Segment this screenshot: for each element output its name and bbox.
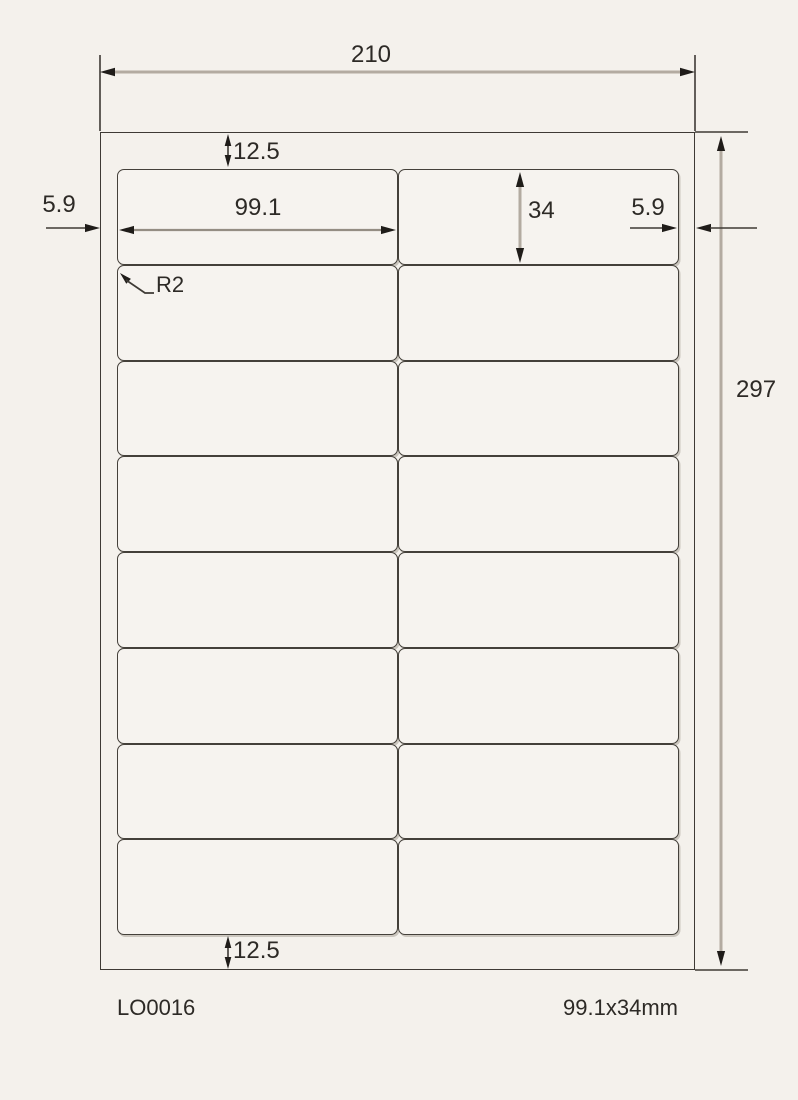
label-cell	[398, 839, 679, 935]
label-cell	[117, 552, 398, 648]
dimension-value-sheet-width: 210	[331, 43, 411, 67]
arrowhead-right-icon	[85, 224, 100, 232]
corner-radius-label: R2	[156, 274, 184, 296]
dimension-value-sheet-height: 297	[736, 378, 776, 402]
label-cell	[398, 648, 679, 744]
dimension-value-margin-bottom: 12.5	[233, 939, 280, 963]
dimension-sheet-height	[695, 132, 748, 970]
dimension-value-margin-left: 5.9	[36, 193, 82, 217]
label-cell	[117, 361, 398, 457]
label-cell	[117, 456, 398, 552]
label-cell	[117, 839, 398, 935]
label-cell	[398, 456, 679, 552]
arrowhead-up-icon	[717, 136, 725, 151]
label-cell	[117, 744, 398, 840]
label-cell	[398, 552, 679, 648]
label-cell	[117, 648, 398, 744]
label-cell	[398, 744, 679, 840]
footer-label-size: 99.1x34mm	[458, 997, 678, 1019]
label-sheet-diagram: 210 12.5 99.1 34 5.9 5.9 297 12.5 R2 LO0…	[0, 0, 798, 1100]
dimension-margin-left	[46, 224, 100, 232]
dimension-value-label-height: 34	[528, 199, 555, 223]
label-cell	[398, 361, 679, 457]
label-grid	[117, 169, 679, 935]
dimension-value-margin-top: 12.5	[233, 140, 280, 164]
footer-product-code: LO0016	[117, 997, 195, 1019]
dimension-value-label-width: 99.1	[208, 196, 308, 220]
arrowhead-right-icon	[680, 68, 695, 76]
arrowhead-left-icon	[100, 68, 115, 76]
dimension-value-margin-right: 5.9	[625, 196, 671, 220]
label-cell	[398, 265, 679, 361]
arrowhead-left-icon	[696, 224, 711, 232]
arrowhead-down-icon	[717, 951, 725, 966]
